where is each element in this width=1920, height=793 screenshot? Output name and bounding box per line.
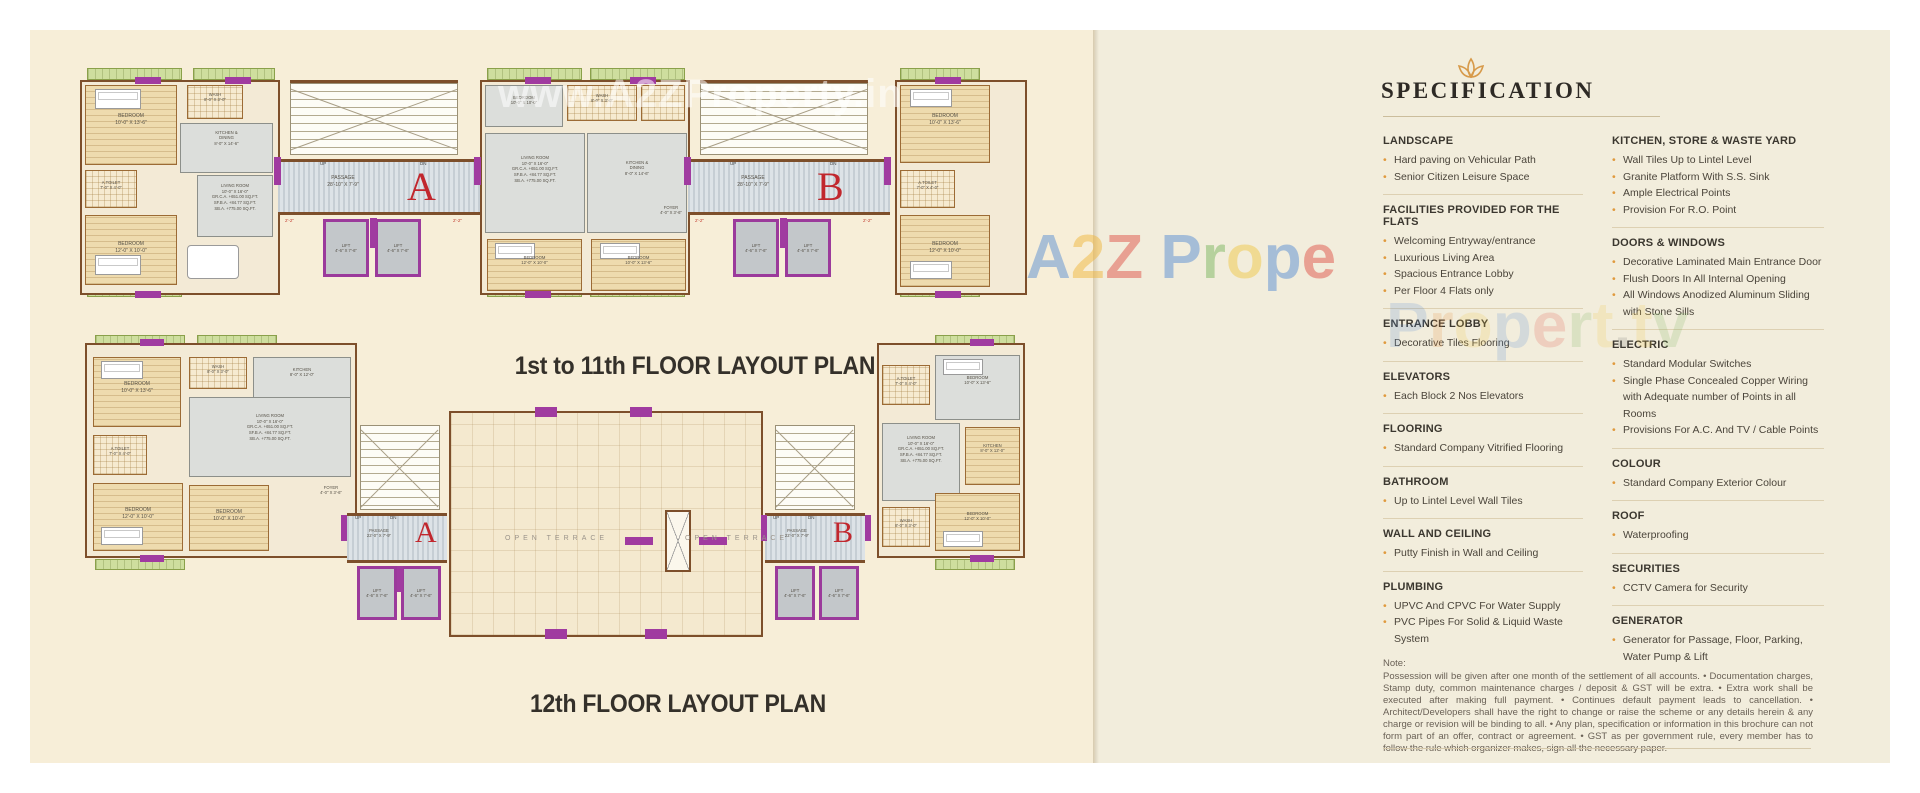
section-item: Decorative Tiles Flooring [1383, 335, 1583, 352]
pillow-icon [913, 92, 949, 100]
section-item: Granite Platform With S.S. Sink [1612, 169, 1824, 186]
room-label: BEDROOM 10'-0" X 10'-0" [189, 509, 269, 522]
spec-column-left: LANDSCAPE Hard paving on Vehicular Path … [1383, 126, 1583, 656]
brochure-page: { "watermarks": { "white": { "text": "ww… [0, 0, 1920, 793]
lift: LIFT 4'-6" X 7'-6" [375, 219, 421, 277]
section-heading: GENERATOR [1612, 615, 1824, 627]
section-item: Ample Electrical Points [1612, 185, 1824, 202]
room-label: WASH 8'-0" X 3'-0" [882, 518, 930, 529]
spec-section-doors-windows: DOORS & WINDOWS Decorative Laminated Mai… [1612, 227, 1824, 329]
room-label: FOYER 4'-0" X 3'-6" [311, 485, 351, 496]
section-heading: SECURITIES [1612, 563, 1824, 575]
room-kitchen-dining [587, 133, 687, 233]
up-label: UP [355, 515, 361, 520]
room-label: FOYER 4'-0" X 3'-6" [651, 205, 691, 216]
door-jamb [525, 77, 551, 84]
room-label: KITCHEN 8'-0" X 12'-0" [253, 367, 351, 378]
plan2-title: 12th FLOOR LAYOUT PLAN [494, 690, 862, 719]
room-label: KITCHEN 8'-0" X 12'-0" [965, 443, 1020, 454]
bed-icon [95, 89, 141, 109]
pillow-icon [104, 364, 140, 372]
door-jamb [274, 157, 281, 185]
section-item: Spacious Entrance Lobby [1383, 266, 1583, 283]
plans-sheet: 2'-0 WIDE ARCH PRGL 2'-0 WIDE ARCH PRGL … [30, 30, 1095, 763]
section-heading: ROOF [1612, 510, 1824, 522]
room-label: BEDROOM 12'-0" X 10'-0" [935, 511, 1020, 522]
bed-icon [95, 255, 141, 275]
room-label: BEDROOM 12'-0" X 10'-0" [93, 507, 183, 520]
staircase [290, 83, 458, 155]
up-label: UP [730, 161, 736, 166]
pillow-icon [498, 246, 532, 254]
section-item: Standard Modular Switches [1612, 356, 1824, 373]
staircase [775, 425, 855, 510]
room-label: KITCHEN & DINING 8'-0" X 14'-6" [587, 160, 687, 176]
dimension-label: 2'-2" [453, 218, 462, 223]
balcony-label: 2'-0 WIDE ARCH PRGL [949, 569, 1000, 570]
door-jamb [935, 291, 961, 298]
door-jamb [140, 339, 164, 346]
pillow-icon [98, 92, 138, 100]
open-terrace [449, 411, 763, 637]
balcony-label: 2'-0 WIDE ARCH PRGL [114, 569, 165, 570]
section-heading: PLUMBING [1383, 581, 1583, 593]
dining-table-icon [187, 245, 239, 279]
room-label: BEDROOM 10'-0" X 13'-6" [93, 381, 181, 394]
section-item: Standard Company Exterior Colour [1612, 475, 1824, 492]
room-label: WASH 8'-0" X 3'-0" [567, 93, 637, 104]
section-heading: LANDSCAPE [1383, 135, 1583, 147]
block-b-letter: B [817, 163, 844, 210]
door-jamb [630, 407, 652, 417]
lift: LIFT 4'-6" X 7'-6" [785, 219, 831, 277]
door-jamb [140, 555, 164, 562]
door-jamb [545, 629, 567, 639]
staircase [360, 425, 440, 510]
room-label: BEDROOM 12'-0" X 10'-0" [85, 241, 177, 254]
spec-column-right: KITCHEN, STORE & WASTE YARD Wall Tiles U… [1612, 126, 1824, 674]
pillow-icon [946, 362, 980, 370]
lift-label: LIFT 4'-6" X 7'-6" [366, 588, 388, 599]
door-jamb [535, 407, 557, 417]
section-heading: ENTRANCE LOBBY [1383, 318, 1583, 330]
note-heading: Note: [1383, 658, 1813, 669]
door-jamb [630, 77, 656, 84]
door-jamb [225, 77, 251, 84]
stair-line [700, 83, 868, 155]
section-item: Waterproofing [1612, 527, 1824, 544]
up-label: UP [320, 161, 326, 166]
section-heading: FACILITIES PROVIDED FOR THE FLATS [1383, 204, 1583, 228]
staircase [700, 83, 868, 155]
section-item: Welcoming Entryway/entrance [1383, 233, 1583, 250]
spec-section-securities: SECURITIES CCTV Camera for Security [1612, 553, 1824, 606]
spec-section-elevators: ELEVATORS Each Block 2 Nos Elevators [1383, 361, 1583, 414]
room-label: BEDROOM 10'-0" X 13'-6" [935, 375, 1020, 386]
section-heading: FLOORING [1383, 423, 1583, 435]
stair-line [290, 83, 458, 155]
room-label: BEDROOM 10'-0" X 13'-6" [85, 113, 177, 126]
lift: LIFT 4'-6" X 7'-6" [323, 219, 369, 277]
up-label: UP [773, 515, 779, 520]
door-jamb [935, 77, 961, 84]
lift-label: LIFT 4'-6" X 7'-6" [410, 588, 432, 599]
room-label: LIVING ROOM 10'-0" X 16'-0" GR.C.A. +651… [882, 435, 960, 463]
lift-label: LIFT 4'-6" X 7'-6" [828, 588, 850, 599]
door-jamb [135, 77, 161, 84]
dn-label: DN [808, 515, 815, 520]
door-jamb [865, 515, 871, 541]
block-a-letter: A [415, 516, 437, 550]
block-b-letter: B [833, 516, 853, 550]
spec-section-plumbing: PLUMBING UPVC And CPVC For Water Supply … [1383, 571, 1583, 657]
block-a-letter: A [407, 163, 436, 210]
spec-section-roof: ROOF Waterproofing [1612, 500, 1824, 553]
room-label: BEDROOM 10'-0" X 10'-0" [485, 95, 563, 106]
spec-title: SPECIFICATION [1381, 78, 1595, 104]
door-jamb [970, 339, 994, 346]
specification-sheet: SPECIFICATION LANDSCAPE Hard paving on V… [1095, 30, 1890, 763]
section-heading: ELECTRIC [1612, 339, 1824, 351]
spec-section-facilities: FACILITIES PROVIDED FOR THE FLATS Welcom… [1383, 194, 1583, 308]
note-rule [1383, 748, 1811, 749]
spec-section-kitchen-store: KITCHEN, STORE & WASTE YARD Wall Tiles U… [1612, 126, 1824, 227]
section-item: Per Floor 4 Flats only [1383, 283, 1583, 300]
lift: LIFT 4'-6" X 7'-6" [819, 566, 859, 620]
room-label: WASH 8'-0" X 3'-0" [187, 92, 243, 103]
room-label: BEDROOM 10'-0" X 13'-6" [900, 113, 990, 126]
section-item: Standard Company Vitrified Flooring [1383, 440, 1583, 457]
section-item: Flush Doors In All Internal Opening [1612, 271, 1824, 288]
pillow-icon [98, 258, 138, 266]
floor-plan-1st-11th: 2'-0 WIDE ARCH PRGL 2'-0 WIDE ARCH PRGL … [75, 55, 1030, 300]
door-jamb [135, 291, 161, 298]
lift-label: LIFT 4'-6" X 7'-6" [784, 588, 806, 599]
section-item: Provision For R.O. Point [1612, 202, 1824, 219]
note-block: Note: Possession will be given after one… [1383, 658, 1813, 755]
door-jamb [884, 157, 891, 185]
passage-label: PASSAGE 28'-10" X 7'-9" [303, 175, 383, 188]
pillow-icon [603, 246, 637, 254]
section-heading: COLOUR [1612, 458, 1824, 470]
door-jamb [341, 515, 347, 541]
door-jamb [370, 218, 377, 248]
section-item: Single Phase Concealed Copper Wiring wit… [1612, 373, 1824, 423]
section-item: Up to Lintel Level Wall Tiles [1383, 493, 1583, 510]
room-label: LIVING ROOM 10'-0" X 16'-0" GR.C.A. +651… [189, 413, 351, 441]
room-label: WASH 8'-0" X 3'-0" [189, 364, 247, 375]
section-item: Hard paving on Vehicular Path [1383, 152, 1583, 169]
passage-label: PASSAGE 22'-0" X 7'-9" [767, 528, 827, 539]
room-label: A.TOILET 7'-0" X 4'-0" [93, 446, 147, 457]
room-label: A.TOILET 7'-0" X 4'-0" [85, 180, 137, 191]
spec-section-landscape: LANDSCAPE Hard paving on Vehicular Path … [1383, 126, 1583, 194]
section-heading: WALL AND CEILING [1383, 528, 1583, 540]
section-item: Wall Tiles Up to Lintel Level [1612, 152, 1824, 169]
spec-section-entrance-lobby: ENTRANCE LOBBY Decorative Tiles Flooring [1383, 308, 1583, 361]
bed-icon [910, 89, 952, 107]
pillow-icon [946, 534, 980, 542]
door-jamb [474, 157, 481, 185]
passage-label: PASSAGE 28'-10" X 7'-9" [713, 175, 793, 188]
door-jamb [397, 566, 403, 592]
passage-label: PASSAGE 22'-0" X 7'-9" [349, 528, 409, 539]
spec-section-colour: COLOUR Standard Company Exterior Colour [1612, 448, 1824, 501]
section-item: PVC Pipes For Solid & Liquid Waste Syste… [1383, 614, 1583, 647]
wall [290, 80, 458, 83]
section-item: Putty Finish in Wall and Ceiling [1383, 545, 1583, 562]
bed-icon [101, 527, 143, 545]
section-item: UPVC And CPVC For Water Supply [1383, 598, 1583, 615]
lift: LIFT 4'-6" X 7'-6" [733, 219, 779, 277]
section-item: Each Block 2 Nos Elevators [1383, 388, 1583, 405]
spec-section-electric: ELECTRIC Standard Modular Switches Singl… [1612, 329, 1824, 448]
lift-label: LIFT 4'-6" X 7'-6" [387, 243, 409, 254]
door-jamb [780, 218, 787, 248]
room-label: BEDROOM 12'-0" X 10'-0" [487, 255, 582, 266]
note-body: Possession will be given after one month… [1383, 671, 1813, 755]
spec-section-flooring: FLOORING Standard Company Vitrified Floo… [1383, 413, 1583, 466]
floor-plan-12th: 2'-0 WIDE ARCH PRGL 2'-0 WIDE ARCH PRGL … [85, 335, 1025, 645]
page-fold [1093, 30, 1099, 763]
door-jamb [970, 555, 994, 562]
lift-label: LIFT 4'-6" X 7'-6" [797, 243, 819, 254]
dimension-label: 2'-2" [863, 218, 872, 223]
section-heading: ELEVATORS [1383, 371, 1583, 383]
room-label: A.TOILET 7'-0" X 4'-0" [882, 376, 930, 387]
dn-label: DN [390, 515, 397, 520]
room-label: BEDROOM 10'-0" X 13'-6" [591, 255, 686, 266]
bed-icon [910, 261, 952, 279]
lift: LIFT 4'-6" X 7'-6" [401, 566, 441, 620]
spec-section-bathroom: BATHROOM Up to Lintel Level Wall Tiles [1383, 466, 1583, 519]
bed-icon [101, 361, 143, 379]
room-label: A.TOILET 7'-0" X 4'-0" [900, 180, 955, 191]
section-item: Luxurious Living Area [1383, 250, 1583, 267]
room-label: BEDROOM 12'-0" X 10'-0" [900, 241, 990, 254]
bed-icon [943, 359, 983, 375]
section-item: All Windows Anodized Aluminum Sliding wi… [1612, 287, 1824, 320]
room-label: LIVING ROOM 10'-0" X 16'-0" GR.C.A. +651… [485, 155, 585, 183]
room-kitchen [965, 427, 1020, 485]
door-jamb [645, 629, 667, 639]
lift-label: LIFT 4'-6" X 7'-6" [335, 243, 357, 254]
room-bath [641, 85, 685, 121]
section-heading: DOORS & WINDOWS [1612, 237, 1824, 249]
section-item: CCTV Camera for Security [1612, 580, 1824, 597]
pillow-icon [913, 264, 949, 272]
room-label: LIVING ROOM 10'-0" X 16'-0" GR.C.A. +651… [197, 183, 273, 211]
room-label: KITCHEN & DINING 8'-0" X 14'-6" [180, 130, 273, 146]
wall [700, 80, 868, 83]
lift-label: LIFT 4'-6" X 7'-6" [745, 243, 767, 254]
title-rule [1383, 116, 1660, 117]
lift: LIFT 4'-6" X 7'-6" [775, 566, 815, 620]
bed-icon [943, 531, 983, 547]
door-jamb [625, 537, 653, 545]
dimension-label: 2'-2" [695, 218, 704, 223]
section-heading: BATHROOM [1383, 476, 1583, 488]
pillow-icon [104, 530, 140, 538]
section-item: Decorative Laminated Main Entrance Door [1612, 254, 1824, 271]
section-item: Senior Citizen Leisure Space [1383, 169, 1583, 186]
lift: LIFT 4'-6" X 7'-6" [357, 566, 397, 620]
section-item: Provisions For A.C. And TV / Cable Point… [1612, 422, 1824, 439]
dimension-label: 2'-2" [285, 218, 294, 223]
open-terrace-label: OPEN TERRACE [505, 535, 608, 542]
door-jamb [525, 291, 551, 298]
spec-section-wall-ceiling: WALL AND CEILING Putty Finish in Wall an… [1383, 518, 1583, 571]
balcony-label: 2'-0 WIDE ARCH PRGL [612, 295, 663, 297]
room-bedroom [485, 85, 563, 127]
section-heading: KITCHEN, STORE & WASTE YARD [1612, 135, 1824, 147]
